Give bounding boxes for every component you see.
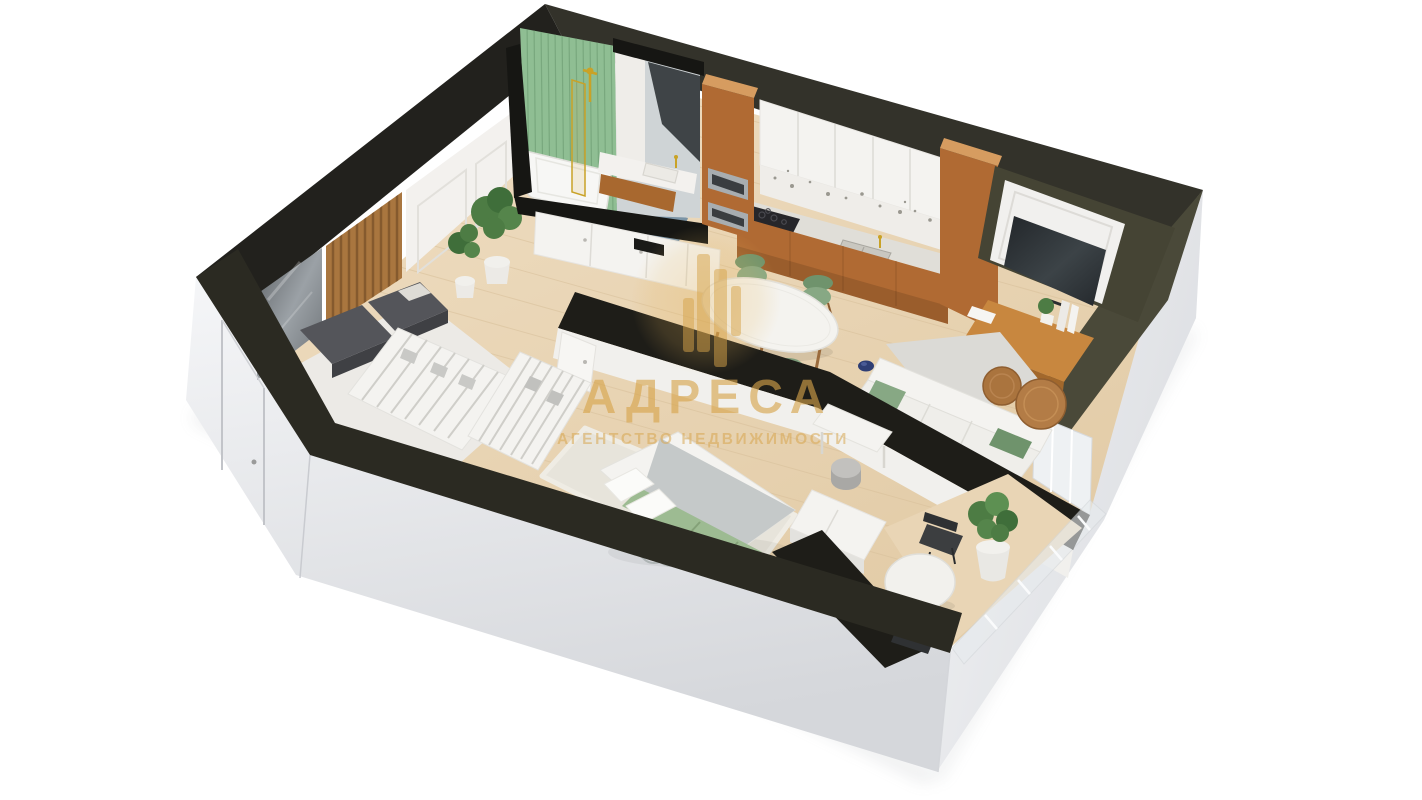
floor-plan-render: АДРЕСА АГЕНТСТВО НЕДВИЖИМОСТИ [0, 0, 1422, 800]
coffee-table [983, 367, 1021, 405]
tall-oven-column [702, 74, 758, 240]
watermark-tagline-text: АГЕНТСТВО НЕДВИЖИМОСТИ [557, 431, 849, 448]
closet-handle [583, 238, 587, 242]
blue-floor-vase [858, 361, 874, 372]
coffee-table [1016, 379, 1066, 429]
shower-glass-screen [572, 80, 585, 196]
pouf [831, 458, 861, 490]
floor-plan-page: АДРЕСА АГЕНТСТВО НЕДВИЖИМОСТИ [0, 0, 1422, 800]
door-handle [252, 460, 257, 465]
watermark-brand-text: АДРЕСА [582, 371, 833, 424]
